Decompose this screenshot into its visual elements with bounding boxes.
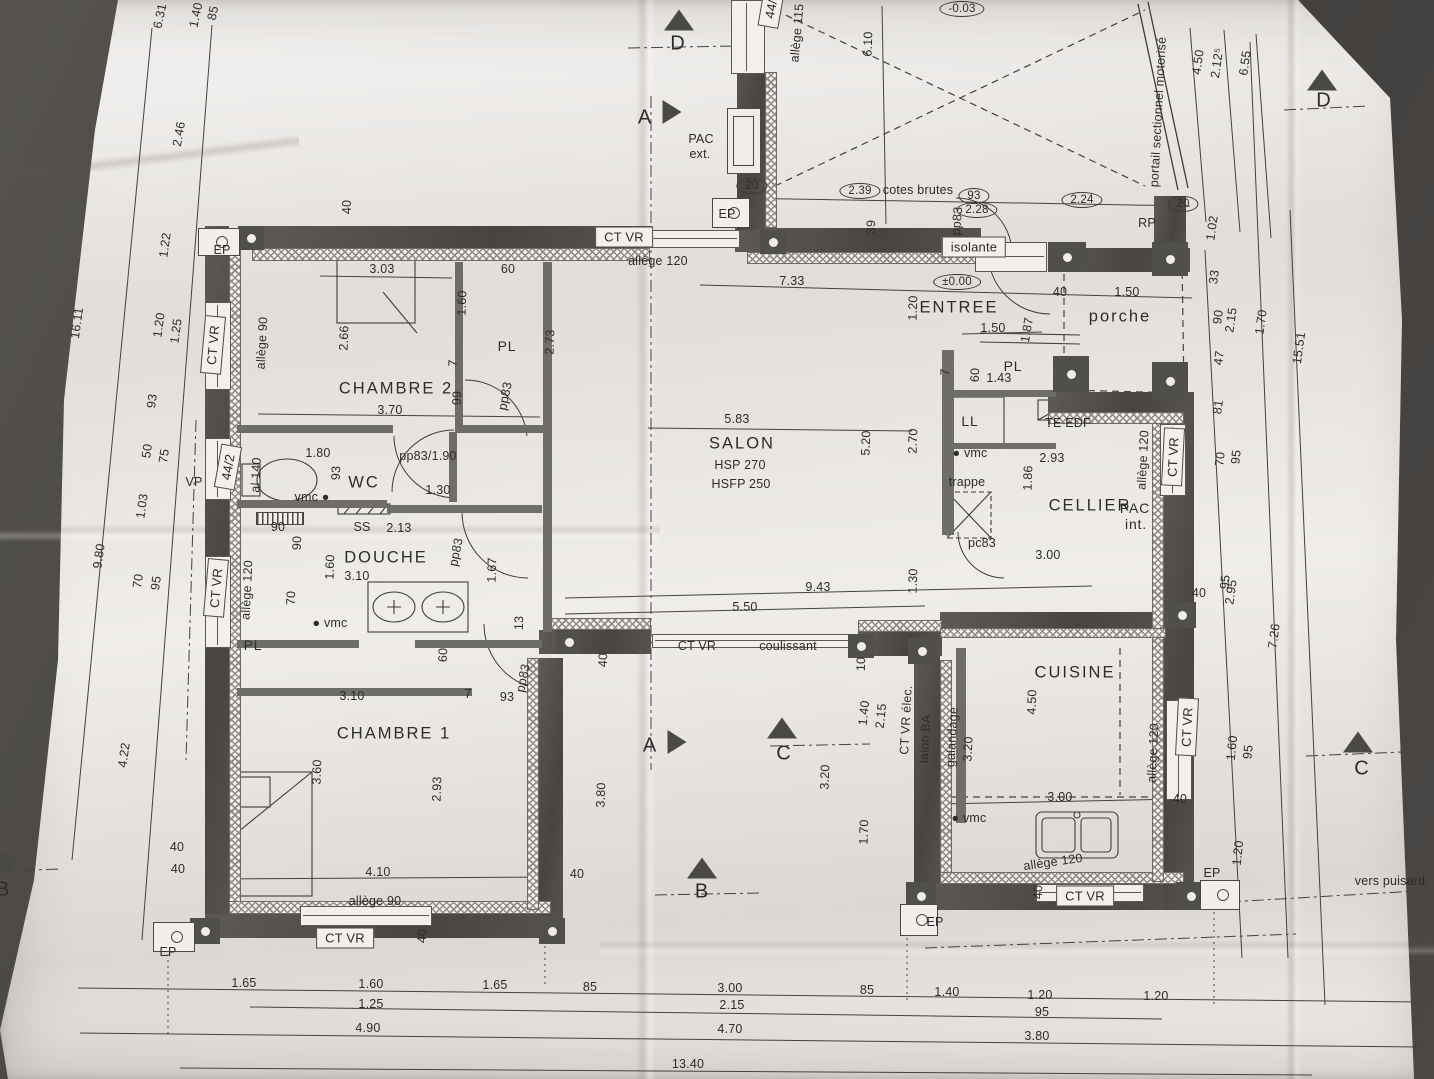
- wall-insulation: [858, 620, 942, 632]
- wall-segment: [250, 226, 652, 248]
- level-badge: 2.39: [839, 183, 880, 199]
- dim-label: 47: [1211, 350, 1227, 366]
- dim-label: 95: [1240, 744, 1255, 760]
- dim-label: 40: [170, 840, 184, 854]
- dim-label: 81: [1210, 399, 1226, 415]
- dim-label: 1.70: [857, 819, 872, 845]
- section-arrow-icon: [663, 100, 682, 124]
- dim-label: 3.10: [339, 689, 364, 703]
- room-label: int.: [1125, 516, 1147, 532]
- dim-label: 5.20: [859, 430, 874, 456]
- dim-label: vers puisard: [1355, 874, 1426, 888]
- wall-insulation: [940, 628, 1166, 638]
- dim-label: 90: [271, 520, 285, 534]
- dim-label: EP: [213, 243, 230, 257]
- room-label: PL: [498, 338, 517, 354]
- dim-label: 40: [340, 200, 354, 214]
- dim-label: 40: [1173, 792, 1187, 806]
- section-letter: A: [643, 735, 657, 758]
- dim-label: ● vmc: [952, 811, 987, 825]
- dim-label: 1.20: [1230, 840, 1247, 866]
- section-arrow-icon: [1343, 732, 1373, 753]
- dim-label: 95: [148, 575, 164, 591]
- dim-label: 1.30: [906, 568, 921, 594]
- room-label: CHAMBRE 2: [339, 380, 453, 399]
- dim-label: 3.00: [1047, 790, 1072, 804]
- dim-label: 2.15: [719, 998, 744, 1012]
- dim-label: 2.66: [337, 325, 352, 351]
- dim-label: 1.50: [980, 321, 1005, 335]
- dim-label: allège 90: [349, 894, 402, 908]
- dim-label: 13.40: [672, 1057, 704, 1071]
- dim-label: 2.15: [873, 703, 890, 729]
- dim-label: ext.: [690, 147, 711, 161]
- dim-label: 1.65: [231, 976, 256, 990]
- dim-label: 1.60: [1224, 735, 1241, 761]
- dim-label: 3.03: [369, 262, 394, 276]
- dim-label: cotes brutes: [883, 183, 954, 197]
- dim-label: 40: [171, 862, 185, 876]
- dim-label: 1.80: [305, 446, 330, 460]
- wall-post: [1048, 242, 1086, 272]
- wall-post: [1168, 602, 1196, 628]
- dim-label: 7.33: [779, 274, 804, 288]
- dim-label: pc83: [968, 536, 996, 550]
- wall-post: [556, 630, 582, 654]
- dim-label: 40: [570, 867, 584, 881]
- dim-label: CT VR: [316, 928, 374, 949]
- dim-label: 3.60: [310, 759, 325, 785]
- section-arrow-icon: [1307, 70, 1337, 91]
- wall-insulation: [940, 872, 1184, 884]
- dim-label: isolante: [942, 237, 1006, 258]
- room-label: porche: [1089, 308, 1151, 327]
- dim-label: 3.80: [594, 782, 609, 808]
- wall-post: [238, 226, 264, 250]
- dim-label: 3.00: [717, 981, 742, 995]
- dim-label: 1.25: [358, 997, 383, 1011]
- room-label: ENTREE: [920, 299, 999, 318]
- dim-label: EP: [718, 207, 735, 221]
- dim-label: 93: [500, 690, 514, 704]
- wall-post: [1152, 242, 1188, 276]
- wall-post: [1152, 362, 1188, 400]
- dim-label: 4.10: [365, 865, 390, 879]
- dim-label: 1.65: [482, 978, 507, 992]
- floor-plan-photo: 6.311.40852.4616.111.221.201.259350751.0…: [0, 0, 1434, 1079]
- downspout-ep-icon: [1200, 880, 1240, 910]
- dim-label: VP: [185, 475, 202, 489]
- section-letter: A: [638, 107, 652, 130]
- dim-label: 93: [144, 393, 160, 409]
- dim-label: 40: [1053, 285, 1067, 299]
- section-letter: D: [670, 33, 685, 56]
- dim-label: CT VR: [678, 639, 716, 653]
- dim-label: 3.70: [377, 403, 402, 417]
- dim-label: 85: [205, 5, 222, 22]
- dim-label: 70: [130, 573, 146, 589]
- level-badge: 2.24: [1061, 192, 1102, 208]
- room-label: WC: [348, 474, 380, 493]
- dim-label: 13: [512, 616, 526, 631]
- partition-wall: [543, 262, 552, 632]
- section-letter: D: [1316, 90, 1331, 113]
- dim-label: allège 90: [254, 316, 271, 369]
- dim-label: 10: [854, 657, 868, 672]
- dim-label: 70: [1212, 451, 1227, 467]
- wall-post: [1053, 356, 1089, 392]
- wall-segment: [914, 656, 940, 886]
- dim-label: SS: [353, 520, 370, 534]
- dim-label: 1.67: [485, 557, 500, 583]
- dim-label: 5.50: [732, 600, 757, 614]
- dim-label: 95: [1035, 1005, 1049, 1019]
- dim-label: EP: [926, 915, 943, 929]
- dim-label: ● vmc: [953, 446, 988, 460]
- dim-label: 70: [284, 591, 298, 606]
- wall-post: [848, 634, 874, 658]
- partition-wall: [944, 390, 1056, 397]
- dim-label: 3.00: [1035, 548, 1060, 562]
- dim-label: 7: [464, 687, 471, 701]
- pac-ext-unit-inner: [733, 116, 754, 166]
- wall-insulation: [765, 72, 777, 228]
- dim-label: 60: [501, 262, 515, 276]
- dim-label: 2.93: [1039, 451, 1064, 465]
- dim-label: trappe: [949, 475, 986, 489]
- partition-wall: [237, 425, 393, 433]
- level-badge: -0.03: [939, 1, 984, 17]
- dim-label: 90: [290, 536, 304, 551]
- dim-label: 1.20: [1143, 989, 1168, 1003]
- dim-label: PAC: [688, 132, 713, 146]
- level-badge: 20: [1167, 196, 1198, 212]
- level-badge: 20: [736, 178, 767, 194]
- dim-label: talon BA: [917, 714, 934, 764]
- dim-label: 2.70: [906, 428, 921, 454]
- dim-label: HSP 270: [714, 458, 765, 472]
- wall-post: [908, 638, 936, 664]
- dim-label: 40: [596, 653, 610, 668]
- dim-label: 40: [415, 929, 429, 944]
- dim-label: 3.20: [818, 764, 833, 790]
- dim-label: 2.93: [430, 776, 445, 802]
- dim-label: 1.50: [1114, 285, 1139, 299]
- dim-label: CT VR: [1161, 428, 1185, 487]
- section-arrow-icon: [687, 858, 717, 879]
- level-badge: ±0.00: [933, 274, 981, 290]
- dim-label: TE EDF: [1045, 416, 1091, 430]
- dim-label: 3.10: [344, 569, 369, 583]
- dim-label: 85: [860, 983, 874, 997]
- dim-label: 1.20: [1027, 988, 1052, 1002]
- wall-segment: [539, 658, 563, 916]
- dim-label: 40: [1192, 586, 1206, 600]
- dim-label: EP: [159, 945, 176, 959]
- dim-label: 85: [583, 980, 597, 994]
- dim-label: 1.30: [425, 483, 450, 497]
- dim-label: ● vmc: [313, 616, 348, 630]
- dim-label: 9.43: [805, 580, 830, 594]
- dim-label: 1.86: [1021, 465, 1036, 491]
- dim-label: 1.60: [358, 977, 383, 991]
- section-arrow-icon: [0, 850, 18, 874]
- dim-label: CT VR: [1056, 886, 1114, 907]
- partition-wall: [455, 425, 543, 433]
- dim-label: 4.50: [1025, 689, 1040, 715]
- dim-label: 1.40: [934, 985, 959, 999]
- dim-label: pp83: [949, 206, 965, 236]
- dim-label: 75: [156, 448, 172, 464]
- wall-post: [760, 230, 786, 254]
- dim-label: 39: [864, 220, 878, 235]
- room-label: CHAMBRE 1: [337, 725, 451, 744]
- dim-label: pp83/1.90: [399, 449, 456, 463]
- dim-label: 3.20: [960, 736, 975, 762]
- room-label: SALON: [709, 435, 775, 454]
- dim-label: 2.73: [543, 329, 558, 355]
- dim-label: RP: [1138, 216, 1156, 230]
- section-letter: C: [776, 743, 791, 766]
- dim-label: 4.70: [717, 1022, 742, 1036]
- section-letter: B: [695, 881, 709, 904]
- dim-label: coulissant: [759, 639, 817, 653]
- dim-label: 99: [450, 391, 464, 406]
- dim-label: CT VR: [595, 227, 653, 248]
- dim-label: 7: [446, 359, 460, 367]
- dim-label: 40: [1031, 885, 1045, 900]
- dim-label: EP: [1203, 866, 1220, 880]
- dim-label: CT VR: [1175, 698, 1199, 757]
- dim-label: vmc ●: [295, 490, 330, 504]
- room-label: PAC: [1120, 500, 1150, 516]
- section-arrow-icon: [767, 718, 797, 739]
- dim-label: 1.40: [856, 700, 873, 726]
- section-arrow-icon: [668, 730, 687, 754]
- dim-label: 1.20: [906, 295, 921, 321]
- dim-label: 7: [938, 368, 952, 376]
- wall-insulation: [252, 248, 650, 261]
- dim-label: 1.43: [986, 371, 1011, 385]
- section-letter: B: [0, 879, 10, 902]
- wall-insulation: [551, 618, 651, 630]
- dim-label: 33: [1206, 269, 1222, 285]
- room-label: DOUCHE: [344, 549, 428, 568]
- wall-post: [539, 918, 565, 944]
- section-letter: C: [1354, 758, 1369, 781]
- window-opening: [650, 230, 740, 248]
- room-label: CUISINE: [1035, 664, 1116, 683]
- wall-insulation: [527, 658, 539, 910]
- dim-label: 93: [329, 466, 343, 481]
- room-label: LL: [961, 413, 978, 429]
- dim-label: 3.80: [1024, 1029, 1049, 1043]
- partition-wall: [415, 640, 542, 648]
- dim-label: 4.90: [355, 1021, 380, 1035]
- dim-label: 1.60: [455, 290, 470, 316]
- dim-label: 6.10: [861, 31, 876, 57]
- dim-label: 1.60: [323, 554, 338, 580]
- dim-label: 95: [1228, 449, 1243, 465]
- dim-label: 60: [968, 368, 982, 383]
- dim-label: 2.13: [386, 521, 411, 535]
- room-label: PL: [244, 637, 263, 653]
- dim-label: allège 120: [628, 254, 688, 268]
- dim-label: al 140: [248, 457, 264, 493]
- section-arrow-icon: [664, 10, 694, 31]
- partition-wall: [387, 505, 542, 513]
- wall-segment: [940, 612, 1174, 628]
- dim-label: HSFP 250: [711, 477, 770, 491]
- dim-label: 50: [139, 443, 155, 459]
- window-opening: [300, 906, 432, 926]
- dim-label: 5.83: [724, 412, 749, 426]
- dim-label: 60: [436, 648, 450, 663]
